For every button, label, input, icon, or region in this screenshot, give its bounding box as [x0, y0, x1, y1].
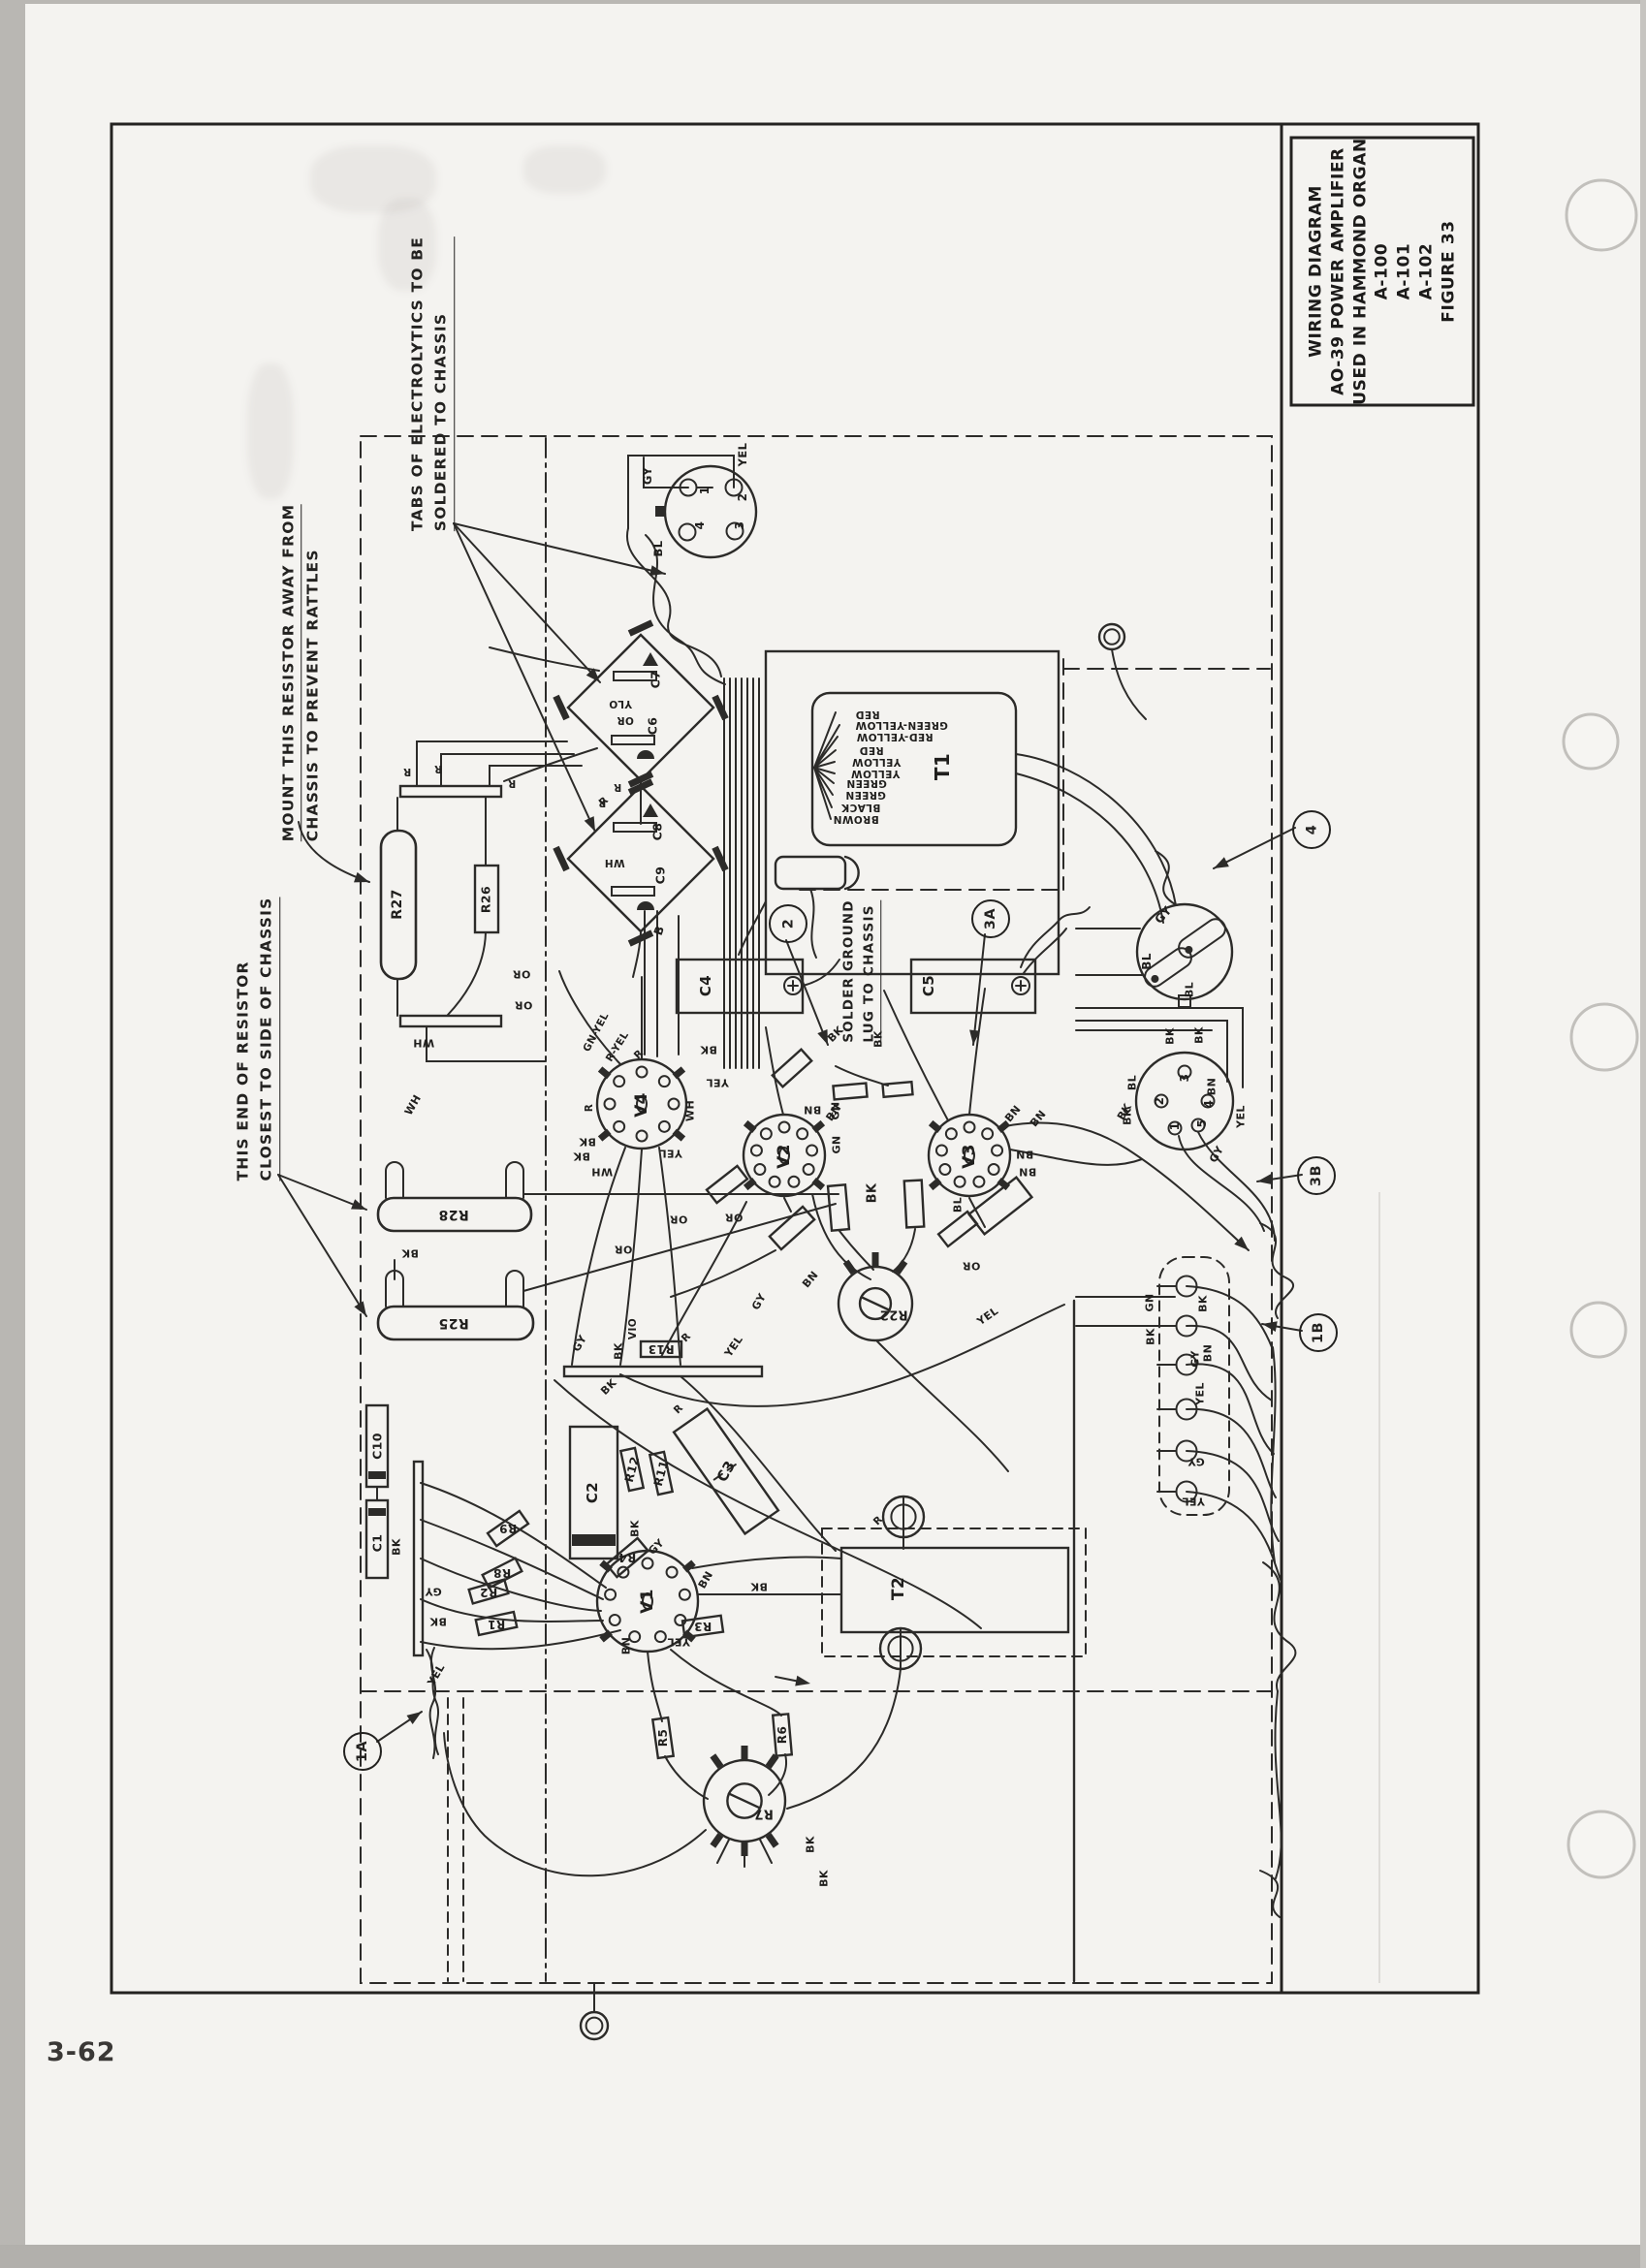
cap-polarity-band	[368, 1471, 386, 1479]
socket-tab	[675, 1131, 683, 1139]
component-label: R22	[879, 1307, 907, 1322]
socket-pin	[614, 1076, 624, 1087]
wire-color-label: OR	[617, 714, 634, 726]
callout-4: 4	[1292, 810, 1331, 849]
pin-number: 4	[1202, 1100, 1216, 1109]
socket-pin	[643, 1559, 653, 1569]
annotation-line: CLOSEST TO SIDE OF CHASSIS	[256, 898, 280, 1181]
callout-label: 4	[1304, 825, 1319, 835]
plug-5pin-component	[1136, 1053, 1233, 1150]
wire-color-label: YEL	[706, 1077, 729, 1089]
callout-label: 3B	[1309, 1165, 1324, 1186]
annotation-line: SOLDER GROUND	[839, 899, 859, 1042]
callout-1B: 1B	[1299, 1313, 1338, 1352]
pin-number: 1	[698, 487, 712, 495]
annotation-3: THIS END OF RESISTORCLOSEST TO SIDE OF C…	[232, 898, 280, 1181]
component-label: V3	[960, 1144, 979, 1169]
socket-pin	[936, 1145, 947, 1155]
punch-holes	[1564, 180, 1637, 1877]
mounting-tab	[629, 933, 652, 944]
r23-component	[707, 1166, 747, 1203]
component-label: R2	[480, 1586, 497, 1599]
ground-stud-component	[581, 2012, 608, 2039]
socket-pin	[605, 1099, 616, 1110]
socket-pin	[610, 1615, 620, 1625]
socket-pin	[939, 1164, 950, 1175]
component-label: C5	[920, 975, 937, 996]
socket-pin	[946, 1128, 957, 1139]
socket-pin	[659, 1076, 670, 1087]
component-label: R8	[493, 1566, 511, 1580]
socket-tab	[745, 1181, 754, 1188]
wire-color-label: BN	[620, 1637, 633, 1654]
pot-lug	[769, 1755, 776, 1766]
callout-label: 3A	[983, 908, 998, 929]
wire-color-label: GY	[641, 467, 654, 485]
wire-color-label: YEL	[1194, 1382, 1207, 1405]
polarity-mark	[637, 750, 654, 759]
wire-color-label: BK	[1122, 1108, 1134, 1125]
wire-color-label: BK	[1164, 1027, 1177, 1045]
wire-color-label: R	[403, 766, 412, 777]
wire-color-label: GREEN-YELLOW	[855, 719, 948, 731]
wire-color-label: BK	[700, 1044, 717, 1056]
title-block-line: FIGURE 33	[1438, 138, 1460, 405]
wire-color-label: BL	[1184, 982, 1196, 997]
r21-component	[904, 1181, 924, 1228]
socket-pin	[992, 1145, 1002, 1155]
wire-color-label: BN	[1202, 1344, 1215, 1362]
component-label: R9	[499, 1522, 517, 1535]
socket-tab	[814, 1123, 823, 1131]
r20-component	[828, 1184, 849, 1230]
wire-color-label: BK	[805, 1836, 817, 1853]
wires	[377, 456, 1295, 2012]
component-label: V1	[638, 1589, 657, 1614]
pot-lug	[769, 1835, 776, 1845]
socket-pin	[973, 1177, 984, 1187]
wire-color-label: YEL	[667, 1636, 690, 1649]
annotation-line: THIS END OF RESISTOR	[232, 898, 255, 1181]
pin-number: 1	[1168, 1122, 1182, 1131]
component-label: C2	[584, 1482, 601, 1503]
socket-pin	[804, 1164, 814, 1175]
socket-tab	[999, 1123, 1008, 1131]
callout-1A: 1A	[343, 1732, 382, 1771]
annotation-line: CHASSIS TO PREVENT RATTLES	[302, 504, 326, 841]
socket-pin	[655, 1631, 666, 1642]
r16-component	[773, 1050, 811, 1087]
socket-pin	[637, 1067, 648, 1078]
socket-tab	[931, 1181, 939, 1188]
wire-color-label: BN	[1016, 1149, 1033, 1161]
wire-color-label: GREEN	[846, 777, 887, 789]
connector-key	[655, 506, 665, 517]
mounting-tab	[556, 696, 567, 719]
r24-component	[938, 1212, 977, 1246]
wire-color-label: GN	[1144, 1293, 1156, 1311]
callout-3B: 3B	[1297, 1156, 1336, 1195]
socket-pin	[659, 1121, 670, 1132]
callout-3A: 3A	[971, 899, 1010, 938]
component-label: R4	[618, 1551, 636, 1564]
mounting-tab	[629, 623, 652, 634]
wire-color-label: R	[584, 1104, 595, 1113]
pin-number: 4	[693, 521, 707, 530]
wire-color-label: BL	[952, 1197, 965, 1213]
wire-color-label: R	[434, 763, 443, 774]
drawing-frame	[111, 124, 1478, 1993]
wire-color-label: BK	[573, 1150, 590, 1163]
pin-number: 2	[736, 493, 749, 502]
wire-color-label: WH	[591, 1166, 613, 1179]
pot-lug	[712, 1835, 720, 1845]
annotation-2: MOUNT THIS RESISTOR AWAY FROMCHASSIS TO …	[277, 504, 326, 841]
socket-pin	[770, 1177, 780, 1187]
component-label: R7	[754, 1807, 774, 1821]
pot-lug	[897, 1262, 904, 1273]
wire-color-label: RED	[859, 744, 883, 756]
socket-pin	[761, 1128, 772, 1139]
socket-pin	[965, 1122, 975, 1133]
wire-color-label: OR	[615, 1244, 633, 1256]
wire-color-label: RED-YELLOW	[856, 731, 933, 742]
component-label: C6	[646, 717, 660, 736]
title-block-line: A-100	[1372, 138, 1394, 405]
socket-tab	[931, 1123, 939, 1131]
grommet-inner	[586, 2018, 603, 2034]
socket-pin	[605, 1590, 616, 1600]
annotation-line: TABS OF ELECTROLYTICS TO BE	[406, 236, 429, 531]
lug-strip-2-component	[400, 1016, 501, 1026]
socket-pin	[614, 1121, 624, 1132]
wire-color-label: BK	[1145, 1328, 1157, 1345]
socket-tab	[600, 1069, 609, 1077]
component-label: C9	[653, 866, 668, 885]
socket-pin	[955, 1177, 965, 1187]
polarity-triangle	[643, 652, 658, 666]
wire-color-label: BK	[1197, 1295, 1210, 1312]
wire-color-label: BL	[651, 541, 665, 557]
components-layer	[366, 466, 1233, 2039]
wire-color-label: BLACK	[841, 802, 881, 813]
wire-color-label: GY	[1189, 1350, 1202, 1368]
wire-color-label: BL	[1126, 1075, 1139, 1090]
socket-tab	[675, 1069, 683, 1077]
wire-color-label: BK	[579, 1136, 596, 1149]
callout-label: 2	[780, 919, 796, 929]
title-block-lines: WIRING DIAGRAMAO-39 POWER AMPLIFIERUSED …	[1305, 138, 1459, 405]
wire-color-label: GY	[1187, 1456, 1205, 1468]
title-block-line: USED IN HAMMOND ORGAN	[1349, 138, 1372, 405]
title-block: WIRING DIAGRAMAO-39 POWER AMPLIFIERUSED …	[1305, 138, 1459, 405]
component-label: V2	[775, 1144, 794, 1169]
grommet-inner	[1104, 629, 1120, 645]
cap-terminal-bar	[612, 736, 654, 744]
pin-number: 5	[1195, 1119, 1209, 1128]
component-label: R1	[488, 1618, 505, 1631]
callout-label: 1A	[355, 1741, 370, 1762]
callout-label: 1B	[1311, 1322, 1326, 1343]
wire-color-label: BK	[818, 1870, 831, 1887]
wire-color-label: GN	[831, 1135, 843, 1153]
component-label: C10	[370, 1433, 385, 1460]
component-label: R3	[694, 1620, 712, 1633]
cap-polarity-band	[572, 1534, 616, 1546]
wire-color-label: BK	[866, 1183, 880, 1204]
callout-2: 2	[769, 904, 807, 943]
title-block-line: A-101	[1393, 138, 1415, 405]
wire-color-label: BK	[1193, 1026, 1206, 1044]
wire-color-label: OR	[515, 999, 533, 1012]
wire-color-label: WH	[413, 1037, 434, 1050]
pin-number: 3	[1178, 1074, 1191, 1083]
grommet-3-component	[1099, 624, 1124, 649]
wire-color-label: BK	[613, 1342, 625, 1360]
pot-lug	[846, 1262, 854, 1273]
socket-pin	[680, 1590, 690, 1600]
socket-pin	[989, 1164, 999, 1175]
annotation-4: SOLDER GROUNDLUG TO CHASSIS	[839, 899, 881, 1042]
page-number: 3-62	[47, 2037, 116, 2067]
component-label: R5	[656, 1729, 670, 1747]
cap-polarity-band	[368, 1508, 386, 1516]
component-label: V4	[632, 1092, 651, 1118]
pin-number: 3	[733, 521, 746, 530]
title-block-line: A-102	[1415, 138, 1438, 405]
polarity-mark	[637, 901, 654, 910]
socket-pin	[637, 1131, 648, 1142]
socket-pin	[788, 1177, 799, 1187]
annotation-1: TABS OF ELECTROLYTICS TO BESOLDERED TO C…	[406, 236, 455, 531]
wire-color-label: WH	[604, 857, 624, 868]
r19-component	[969, 1178, 1032, 1235]
chassis-outlines	[361, 436, 1379, 1983]
pin-number: 2	[1153, 1097, 1166, 1106]
component-label: R28	[438, 1207, 468, 1222]
wire-color-label: OR	[725, 1212, 744, 1224]
socket-tab	[745, 1123, 754, 1131]
wire-color-label: GY	[425, 1586, 442, 1598]
component-label: R27	[390, 889, 405, 919]
component-label: C7	[649, 671, 663, 689]
lug-strip-1-component	[400, 786, 501, 797]
wire-color-label: BK	[401, 1247, 419, 1260]
socket-pin	[669, 1099, 680, 1110]
wire-color-label: R	[508, 777, 517, 789]
mounting-tab	[556, 847, 567, 870]
plus-sign	[788, 981, 798, 991]
wire-color-label: YLO	[609, 698, 632, 709]
wire-color-label: BROWN	[833, 813, 878, 825]
component-label: T1	[931, 753, 954, 780]
annotation-line: SOLDERED TO CHASSIS	[430, 236, 455, 531]
wire-color-label: BN	[1206, 1078, 1219, 1095]
wire-color-label: YEL	[736, 443, 749, 467]
component-label: C1	[370, 1534, 385, 1553]
component-label: T2	[889, 1577, 908, 1600]
socket-pin	[754, 1164, 765, 1175]
socket-pin	[807, 1145, 817, 1155]
wire-color-label: WH	[684, 1100, 697, 1121]
wire-color-label: GREEN	[845, 789, 886, 801]
wire-color-label: VIO	[627, 1318, 639, 1339]
wire-color-label: YEL	[1235, 1105, 1248, 1128]
socket-tab	[814, 1181, 823, 1188]
wire-color-label: OR	[513, 968, 531, 981]
component-label: C4	[697, 975, 714, 996]
wire-color-label: OR	[963, 1260, 981, 1273]
wire-color-label: BL	[1140, 953, 1154, 970]
component-label: R25	[438, 1315, 468, 1331]
title-block-line: AO-39 POWER AMPLIFIER	[1327, 138, 1349, 405]
title-block-line: WIRING DIAGRAM	[1305, 138, 1327, 405]
r18-component	[770, 1207, 814, 1249]
component-label: R26	[479, 886, 493, 913]
socket-pin	[667, 1567, 678, 1578]
wire-color-label: YELLOW	[852, 756, 902, 768]
wire-color-label: BN	[1019, 1166, 1036, 1179]
annotation-line: LUG TO CHASSIS	[860, 899, 881, 1042]
component-label: R6	[776, 1726, 789, 1744]
annotation-line: MOUNT THIS RESISTOR AWAY FROM	[277, 504, 301, 841]
component-label: C8	[650, 823, 665, 841]
lug-strip-4-component	[564, 1367, 762, 1376]
r14-component	[833, 1084, 867, 1100]
r15-component	[882, 1082, 912, 1097]
wire-color-label: BK	[629, 1520, 642, 1537]
socket-pin	[779, 1122, 790, 1133]
polarity-triangle	[643, 803, 658, 817]
cap-terminal-bar	[612, 887, 654, 896]
wire-color-label: OR	[670, 1213, 688, 1226]
socket-pin	[982, 1128, 993, 1139]
plus-sign	[1016, 981, 1026, 991]
wire-color-label: YEL	[659, 1148, 682, 1160]
component-label: R13	[648, 1342, 674, 1356]
wire-color-label: BK	[429, 1616, 447, 1628]
wire-color-label: BK	[391, 1538, 403, 1556]
socket-pin	[751, 1145, 762, 1155]
wire-color-label: YEL	[1182, 1496, 1205, 1508]
wire-color-label: BK	[750, 1581, 768, 1593]
t2-component	[841, 1548, 1068, 1632]
plug-1-component	[665, 466, 756, 557]
socket-tab	[600, 1131, 609, 1139]
socket-tab	[602, 1632, 611, 1640]
socket-pin	[797, 1128, 807, 1139]
wire-color-label: BN	[804, 1104, 821, 1117]
pot-lug	[712, 1755, 720, 1766]
wire-color-label: R	[614, 781, 622, 793]
